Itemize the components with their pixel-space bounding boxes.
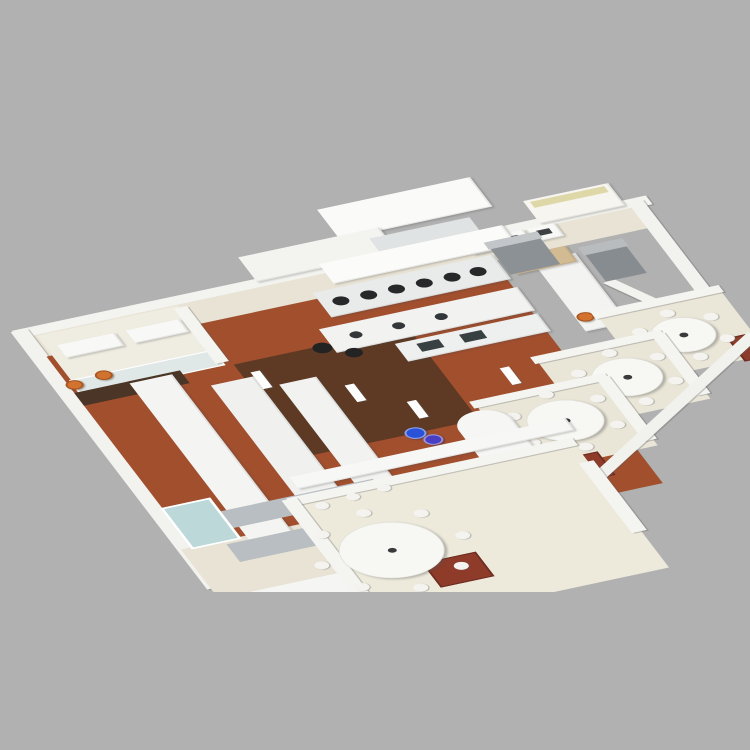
scene-background xyxy=(0,0,750,750)
floorplan-render xyxy=(0,0,750,592)
